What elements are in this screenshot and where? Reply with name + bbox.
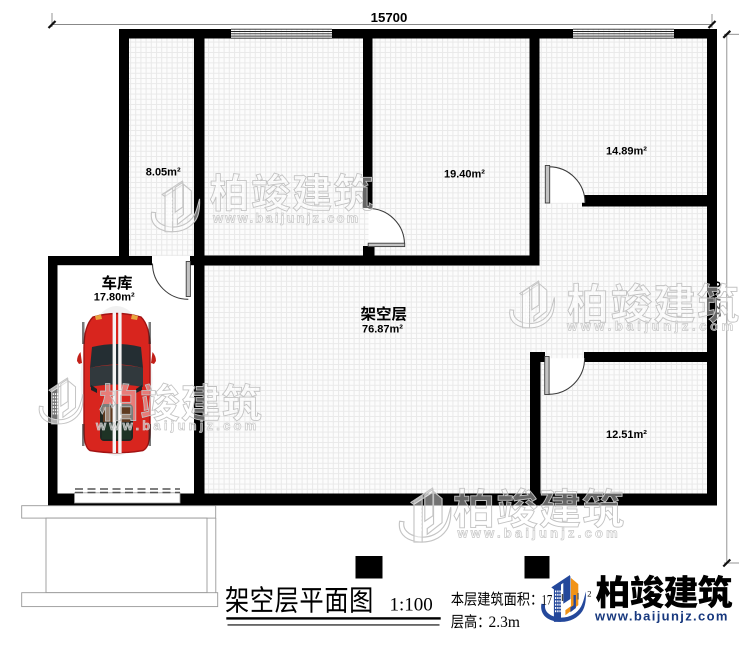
svg-text:1:100: 1:100 bbox=[390, 595, 433, 616]
svg-text:www.baijunjz.com: www.baijunjz.com bbox=[212, 211, 360, 226]
svg-text:12.51m²: 12.51m² bbox=[606, 429, 647, 441]
svg-text:17.80m²: 17.80m² bbox=[94, 292, 135, 304]
svg-text:76.87m²: 76.87m² bbox=[362, 324, 403, 336]
svg-text:8.05m²: 8.05m² bbox=[146, 167, 181, 179]
svg-text:www.baijunjz.com: www.baijunjz.com bbox=[594, 609, 729, 624]
svg-text:2: 2 bbox=[587, 589, 591, 599]
svg-text:www.baijunjz.com: www.baijunjz.com bbox=[95, 418, 259, 433]
svg-text:15700: 15700 bbox=[371, 10, 408, 25]
svg-text:19.40m²: 19.40m² bbox=[444, 169, 485, 181]
svg-text:2.3m: 2.3m bbox=[489, 614, 520, 631]
svg-text:14.89m²: 14.89m² bbox=[606, 146, 647, 158]
svg-text:www.baijunjz.com: www.baijunjz.com bbox=[566, 319, 737, 334]
svg-text:www.baijunjz.com: www.baijunjz.com bbox=[457, 526, 621, 541]
svg-text:17: 17 bbox=[542, 591, 553, 608]
